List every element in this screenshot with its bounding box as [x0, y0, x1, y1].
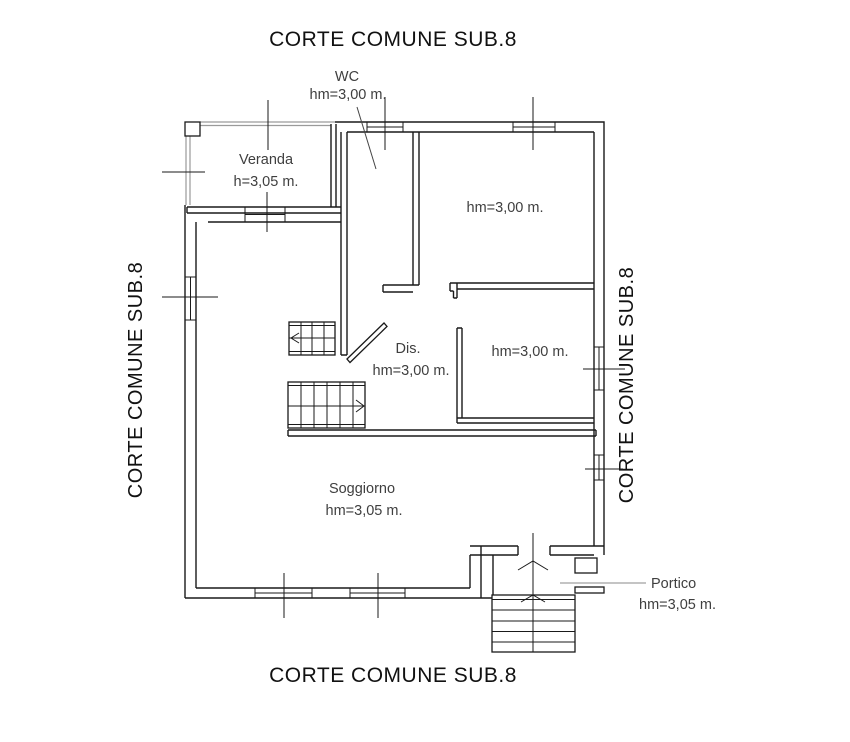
top-right-room-bottom-wall: [450, 283, 594, 298]
top-right-room-height: hm=3,00 m.: [467, 200, 544, 216]
wc-leader-line: [357, 107, 376, 169]
corridor-wc-wall: [341, 132, 347, 355]
portico-name: Portico: [651, 576, 696, 592]
soggiorno-height: hm=3,05 m.: [326, 503, 403, 519]
label-wc: WC hm=3,00 m.: [310, 69, 387, 103]
window-top-right-room: [513, 122, 555, 132]
title-bottom: CORTE COMUNE SUB.8: [269, 664, 517, 687]
veranda-height: h=3,05 m.: [234, 174, 299, 190]
title-left: CORTE COMUNE SUB.8: [125, 262, 147, 498]
mid-right-room-height: hm=3,00 m.: [492, 344, 569, 360]
floor-plan-drawing: CORTE COMUNE SUB.8 CORTE COMUNE SUB.8 CO…: [0, 0, 850, 742]
floor-plan-page: CORTE COMUNE SUB.8 CORTE COMUNE SUB.8 CO…: [0, 0, 850, 742]
dis-name: Dis.: [396, 341, 421, 357]
dis-height: hm=3,00 m.: [373, 363, 450, 379]
window-left-wall: [185, 277, 196, 320]
veranda-name: Veranda: [239, 152, 294, 168]
portico-height: hm=3,05 m.: [639, 597, 716, 613]
upper-stair: [289, 322, 335, 355]
mid-right-room-bottom-wall: [457, 418, 594, 423]
lower-stair: [288, 382, 365, 428]
label-soggiorno: Soggiorno hm=3,05 m.: [326, 481, 403, 519]
label-veranda: Veranda h=3,05 m.: [234, 152, 299, 190]
veranda-corner-pillar: [185, 122, 200, 136]
window-right-soggiorno: [594, 455, 604, 480]
door-leaf-dis: [347, 323, 387, 363]
title-top: CORTE COMUNE SUB.8: [269, 28, 517, 51]
veranda-walls: [187, 124, 341, 222]
wc-right-wall: [383, 132, 419, 292]
label-dis: Dis. hm=3,00 m.: [373, 341, 450, 379]
label-portico: Portico hm=3,05 m.: [639, 576, 716, 613]
soggiorno-name: Soggiorno: [329, 481, 395, 497]
wc-height: hm=3,00 m.: [310, 87, 387, 103]
portico-walls: [470, 546, 604, 598]
mid-right-room-left-wall: [457, 328, 462, 418]
soggiorno-top-wall: [288, 430, 596, 436]
wc-name: WC: [335, 69, 359, 85]
portico-right-pier: [575, 558, 597, 573]
outer-walls: [185, 122, 604, 598]
portico-bottom-right-wall: [575, 587, 604, 593]
title-right: CORTE COMUNE SUB.8: [616, 267, 638, 503]
